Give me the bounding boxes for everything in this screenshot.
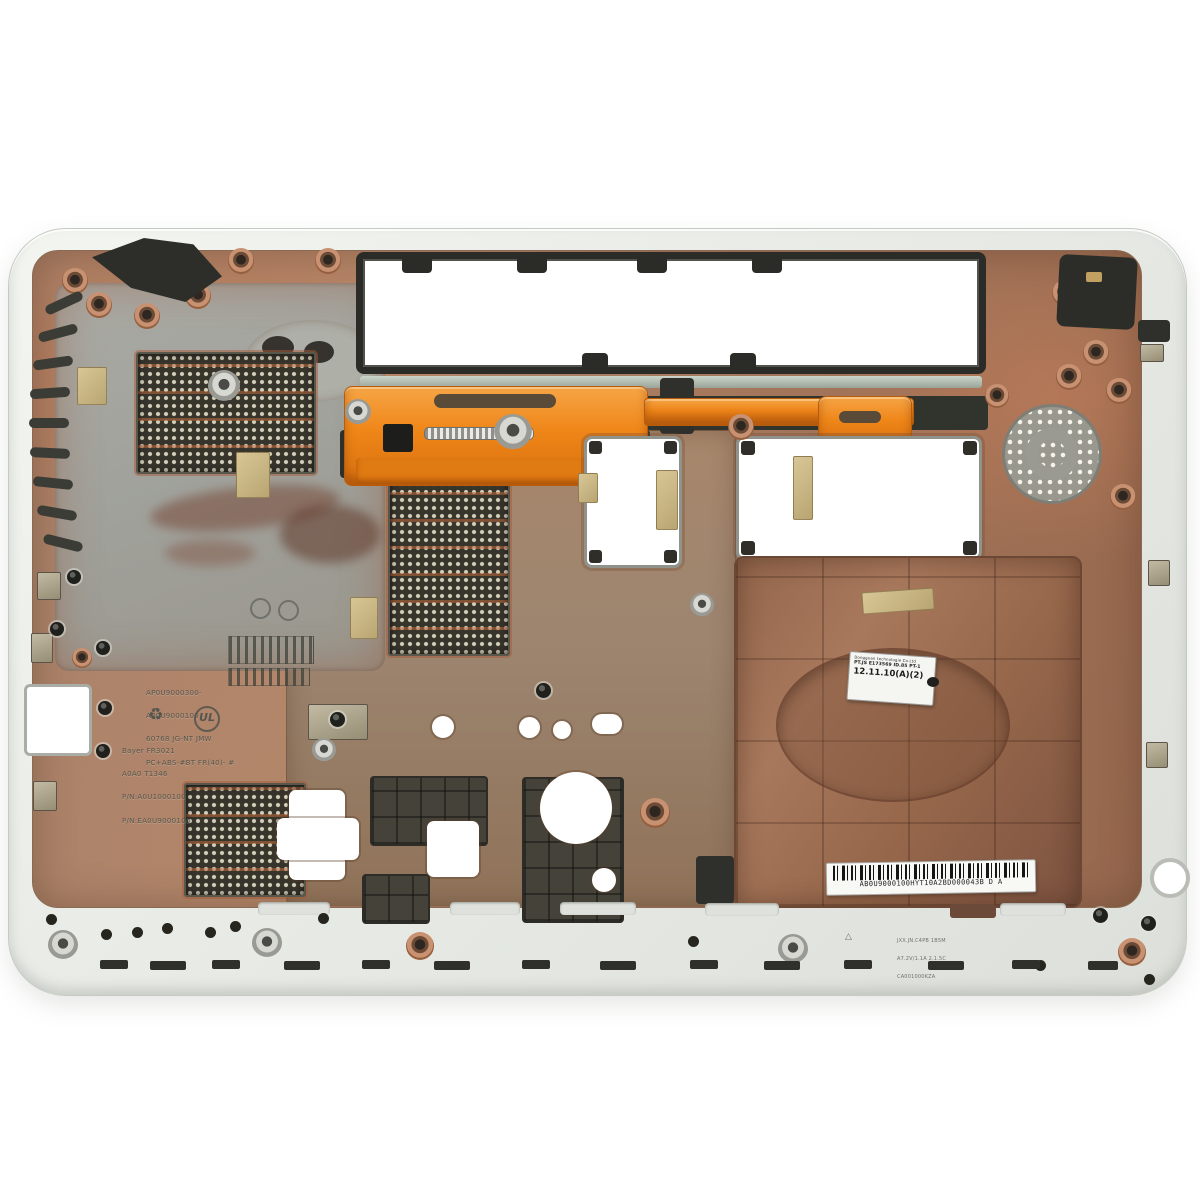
screw-boss [86, 292, 112, 318]
spec-sticker: Dongguan technologie Co.Ltd PT.JS E17356… [846, 651, 936, 706]
screw-black [50, 622, 64, 636]
screw-black [96, 744, 110, 758]
molded-line: P/N:A0U1000100 [122, 794, 191, 802]
screw-boss-silver [690, 593, 714, 617]
rubber-foot-dot [46, 914, 57, 925]
corner-bumper [741, 441, 755, 455]
rubber-foot-dot [162, 923, 173, 934]
latch-pivot-cylinder [494, 414, 532, 450]
screw-boss [134, 303, 160, 329]
rim-relief-slot [560, 902, 636, 915]
cooling-vent-grille-center [388, 470, 510, 656]
rim-slot [434, 961, 470, 970]
rubber-foot-dot [101, 929, 112, 940]
screw-silver [345, 399, 371, 425]
corner-bumper [664, 550, 677, 563]
screw-boss [62, 268, 88, 294]
kapton-tape [578, 473, 598, 503]
screw-boss [406, 932, 434, 960]
screw-boss [1118, 938, 1146, 966]
corner-bumper [589, 550, 602, 563]
rim-relief-slot [1000, 903, 1066, 916]
side-port-opening [1138, 320, 1170, 342]
rim-slot [150, 961, 186, 970]
battery-clip [402, 259, 432, 273]
molded-line: AP0U9000300- [146, 690, 234, 698]
screw-boss [985, 384, 1009, 408]
port-shield-block [1146, 742, 1168, 768]
corner-round-hole [1150, 858, 1190, 898]
solder-burn-mark [280, 505, 380, 563]
molded-line: A0A0 T1346 [122, 771, 191, 779]
rim-relief-slot [258, 902, 330, 915]
molded-line: CA001000KZA [897, 974, 946, 980]
rim-slot [212, 960, 240, 969]
screw-boss [1110, 484, 1136, 510]
corner-bumper [741, 541, 755, 555]
screw-boss-silver [778, 934, 808, 964]
screw-boss [640, 798, 670, 828]
screw-black [98, 701, 112, 715]
barcode-sticker: AB0U9000100HYT10A2BD000043B D A [826, 859, 1037, 896]
through-hole [519, 717, 540, 738]
screw-boss [728, 414, 754, 440]
laptop-bottom-case-photo: Dongguan technologie Co.Ltd PT.JS E17356… [0, 0, 1200, 1200]
molded-gauge-stripes [228, 636, 314, 664]
molded-line: P/N:EA0U9000100 [122, 818, 191, 826]
corner-bumper [589, 441, 602, 454]
battery-clip [582, 353, 608, 367]
battery-clip [730, 353, 756, 367]
ul-certification-icon: UL [194, 706, 220, 732]
recycle-icon: ♻ [148, 706, 163, 724]
screw-boss [1083, 340, 1109, 366]
kapton-tape [77, 367, 107, 405]
port-shield-block [31, 633, 53, 663]
corner-bumper [963, 441, 977, 455]
rim-slot [690, 960, 718, 969]
port-shield-block [1140, 344, 1164, 362]
through-hole [553, 721, 571, 739]
side-vent-slat [29, 418, 69, 428]
screw-black [1141, 916, 1156, 931]
bracket-gold-pad [1086, 272, 1102, 282]
corner-bumper [963, 541, 977, 555]
speaker-grille-center [1038, 440, 1066, 468]
through-hole [592, 868, 616, 892]
sticker-ink-dot [927, 677, 939, 687]
rim-slot [522, 960, 550, 969]
through-hole-large [540, 772, 612, 844]
molded-line: JXX.JN.C4PB 1B5M [897, 938, 946, 944]
port-shield-block [1148, 560, 1170, 586]
screw-boss [315, 248, 341, 274]
screw-black [330, 712, 345, 727]
rim-slot [100, 960, 128, 969]
battery-bay-opening [356, 252, 986, 374]
kapton-tape [793, 456, 813, 520]
molded-material-lines: Bayer FR3021 A0A0 T1346 P/N:A0U1000100 P… [122, 732, 191, 841]
screw-boss [72, 648, 92, 668]
molded-line: Bayer FR3021 [122, 748, 191, 756]
connector-block [696, 856, 734, 904]
rubber-foot-dot [230, 921, 241, 932]
molded-gauge-stripes [228, 668, 310, 686]
rim-relief-slot [705, 903, 779, 916]
screw-black [536, 683, 551, 698]
port-shield-block [33, 781, 57, 811]
rim-slot [362, 960, 390, 969]
screw-black [96, 641, 110, 655]
bracket-slot [839, 411, 881, 423]
latch-switch-block [383, 424, 413, 452]
through-hole [432, 716, 454, 738]
rim-molded-text: JXX.JN.C4PB 1B5M A7.2V/1.1A 2.1.5C CA001… [897, 926, 946, 992]
latch-lower-lip [356, 458, 586, 484]
corner-bumper [664, 441, 677, 454]
battery-clip [752, 259, 782, 273]
screw-boss-silver [252, 928, 282, 958]
side-port-cutout [24, 684, 92, 756]
screw-black [67, 570, 81, 584]
rubber-foot-pad [950, 904, 996, 918]
screw-boss [1106, 378, 1132, 404]
battery-clip [637, 259, 667, 273]
rim-slot [844, 960, 872, 969]
side-vent-slat [30, 447, 70, 459]
battery-clip [517, 259, 547, 273]
rim-slot [1088, 961, 1118, 970]
rim-slot [600, 961, 636, 970]
rubber-foot-dot [132, 927, 143, 938]
molded-line: A7.2V/1.1A 2.1.5C [897, 956, 946, 962]
rim-relief-slot [450, 902, 520, 915]
through-cutout [427, 821, 479, 877]
mold-date-wheel [250, 598, 271, 619]
screw-boss-silver [312, 738, 336, 762]
top-right-bracket [1056, 254, 1138, 330]
rim-slot [1012, 960, 1040, 969]
screw-boss-silver [208, 370, 240, 402]
latch-slot [434, 394, 556, 408]
rim-slot [764, 961, 800, 970]
screw-black [1093, 908, 1108, 923]
rubber-foot-dot [1144, 974, 1155, 985]
mold-date-wheel [278, 600, 299, 621]
chassis-cutout-b [736, 436, 982, 560]
rubber-foot-dot [318, 913, 329, 924]
screw-boss [228, 248, 254, 274]
screw-boss [1056, 364, 1082, 390]
port-shield-block [37, 572, 61, 600]
through-hole [592, 714, 622, 734]
through-cutout [277, 818, 359, 860]
kapton-tape [656, 470, 678, 530]
rim-slot [284, 961, 320, 970]
kapton-tape [236, 452, 270, 498]
speaker-grille [1002, 404, 1102, 504]
screw-boss-silver [48, 930, 78, 960]
ribbed-block [362, 874, 430, 924]
rubber-foot-dot [688, 936, 699, 947]
solder-burn-mark [165, 540, 255, 566]
kapton-tape [350, 597, 378, 639]
rim-recycle-mark-icon: △ [845, 934, 852, 940]
rubber-foot-dot [205, 927, 216, 938]
